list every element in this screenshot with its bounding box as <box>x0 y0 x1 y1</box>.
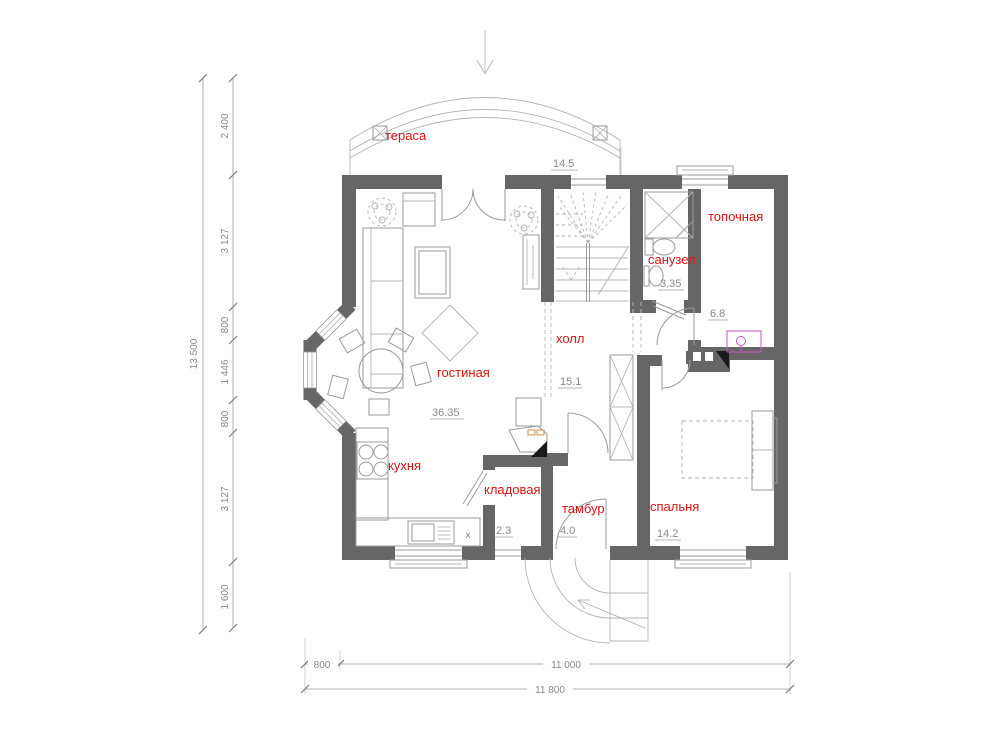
stove <box>359 445 388 476</box>
window-pantry <box>495 546 521 560</box>
window-stair-terrace <box>571 175 606 189</box>
room-area-pantry: 2.3 <box>496 525 511 537</box>
dim-left-6: 3 127 <box>220 486 231 511</box>
window-boiler <box>677 166 733 189</box>
dim-left-1: 2 400 <box>220 113 231 138</box>
hall-wardrobe <box>610 355 633 460</box>
dim-left-7: 1 600 <box>220 584 231 609</box>
room-area-living: 36.35 <box>432 407 460 419</box>
bay-window-glass <box>304 352 317 388</box>
room-label-terrace: тераса <box>385 128 427 143</box>
room-area-boiler: 6.8 <box>710 308 725 320</box>
terrace-french-doors <box>442 189 505 221</box>
entrance-steps <box>525 558 648 643</box>
coffee-table <box>415 247 450 298</box>
plant-topleft <box>368 198 396 226</box>
staircase <box>556 192 629 302</box>
bed <box>682 411 777 490</box>
bay-window-walls <box>304 305 352 435</box>
tv-cabinet <box>523 235 539 289</box>
room-area-terrace: 14.5 <box>553 158 574 170</box>
rug <box>422 305 478 361</box>
dim-left-5: 800 <box>220 410 231 427</box>
fireplace <box>509 398 547 457</box>
cabinet-top <box>403 193 435 226</box>
room-label-bedroom: спальня <box>650 499 699 514</box>
dining-table <box>328 328 432 415</box>
window-kitchen <box>390 546 467 568</box>
room-label-hall: холл <box>556 331 584 346</box>
room-label-kitchen: кухня <box>388 458 421 473</box>
dim-bottom-11000: 11 000 <box>551 660 581 671</box>
kitchen-counter <box>356 428 480 546</box>
floor-plan-canvas: 13 500 2 400 3 127 800 1 446 800 3 127 1… <box>0 0 1000 750</box>
dim-left-3: 800 <box>220 316 231 333</box>
vestibule-door <box>568 413 608 453</box>
dimension-left-total: 13 500 <box>189 74 207 634</box>
dim-bottom-total-text: 11 800 <box>535 685 565 696</box>
room-area-bathroom: 3.35 <box>660 278 681 290</box>
kitchen-sink <box>408 521 454 544</box>
plant-right <box>510 206 538 234</box>
dim-bottom-800: 800 <box>314 660 331 671</box>
boiler-door <box>657 308 694 345</box>
room-label-pantry: кладовая <box>484 482 541 497</box>
dim-left-4: 1 446 <box>220 359 231 384</box>
dim-left-2: 3 127 <box>220 228 231 253</box>
dimension-left-chain: 2 400 3 127 800 1 446 800 3 127 1 600 <box>220 74 237 632</box>
floor-plan-svg: 13 500 2 400 3 127 800 1 446 800 3 127 1… <box>0 0 1000 750</box>
kitchen-x-mark: x <box>466 530 471 541</box>
room-area-bedroom: 14.2 <box>657 528 678 540</box>
room-area-hall: 15.1 <box>560 376 581 388</box>
room-label-vestibule: тамбур <box>562 501 605 516</box>
chimney-block <box>688 347 730 372</box>
room-area-vestibule: 4.0 <box>560 525 575 537</box>
room-label-boiler: топочная <box>708 209 763 224</box>
window-bedroom <box>675 546 751 568</box>
sofa <box>363 228 403 388</box>
room-areas: 14.5 3.35 6.8 15.1 36.35 2.3 4.0 14.2 <box>430 158 728 540</box>
room-label-living: гостиная <box>437 365 490 380</box>
shower <box>645 192 693 238</box>
room-label-bathroom: санузел <box>648 252 696 267</box>
bedroom-door <box>662 360 690 390</box>
terrace-structure <box>350 30 621 175</box>
dim-left-total-text: 13 500 <box>189 338 200 369</box>
dimension-bottom-total: 11 800 <box>301 682 794 696</box>
dimension-bottom-chain: 800 11 000 <box>301 572 794 694</box>
